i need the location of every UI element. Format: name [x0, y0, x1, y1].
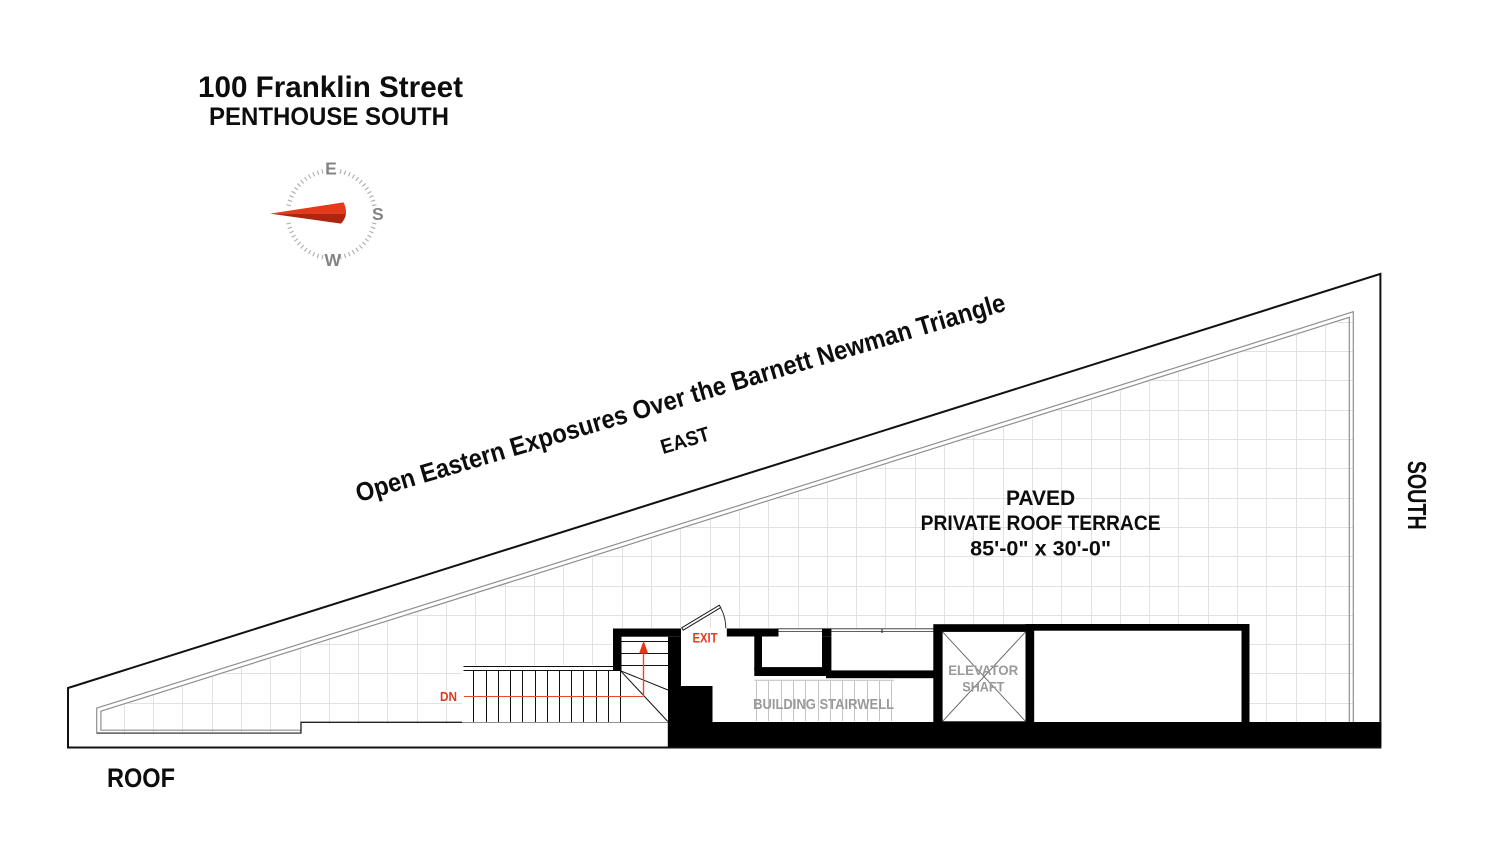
- svg-text:100 Franklin Street: 100 Franklin Street: [198, 71, 463, 104]
- svg-text:S: S: [372, 204, 384, 224]
- svg-text:PAVED: PAVED: [1006, 487, 1075, 510]
- svg-text:EXIT: EXIT: [693, 631, 719, 646]
- svg-text:E: E: [325, 158, 337, 178]
- svg-text:W: W: [325, 250, 342, 270]
- svg-text:BUILDING STAIRWELL: BUILDING STAIRWELL: [753, 696, 894, 713]
- svg-text:SHAFT: SHAFT: [962, 680, 1005, 695]
- svg-text:SOUTH: SOUTH: [1402, 461, 1432, 530]
- svg-text:ELEVATOR: ELEVATOR: [948, 663, 1018, 678]
- svg-text:DN: DN: [440, 689, 457, 704]
- svg-text:PRIVATE ROOF TERRACE: PRIVATE ROOF TERRACE: [921, 512, 1161, 535]
- svg-text:85'-0" x 30'-0": 85'-0" x 30'-0": [970, 537, 1111, 561]
- svg-text:PENTHOUSE SOUTH: PENTHOUSE SOUTH: [209, 103, 449, 131]
- svg-text:ROOF: ROOF: [107, 763, 175, 793]
